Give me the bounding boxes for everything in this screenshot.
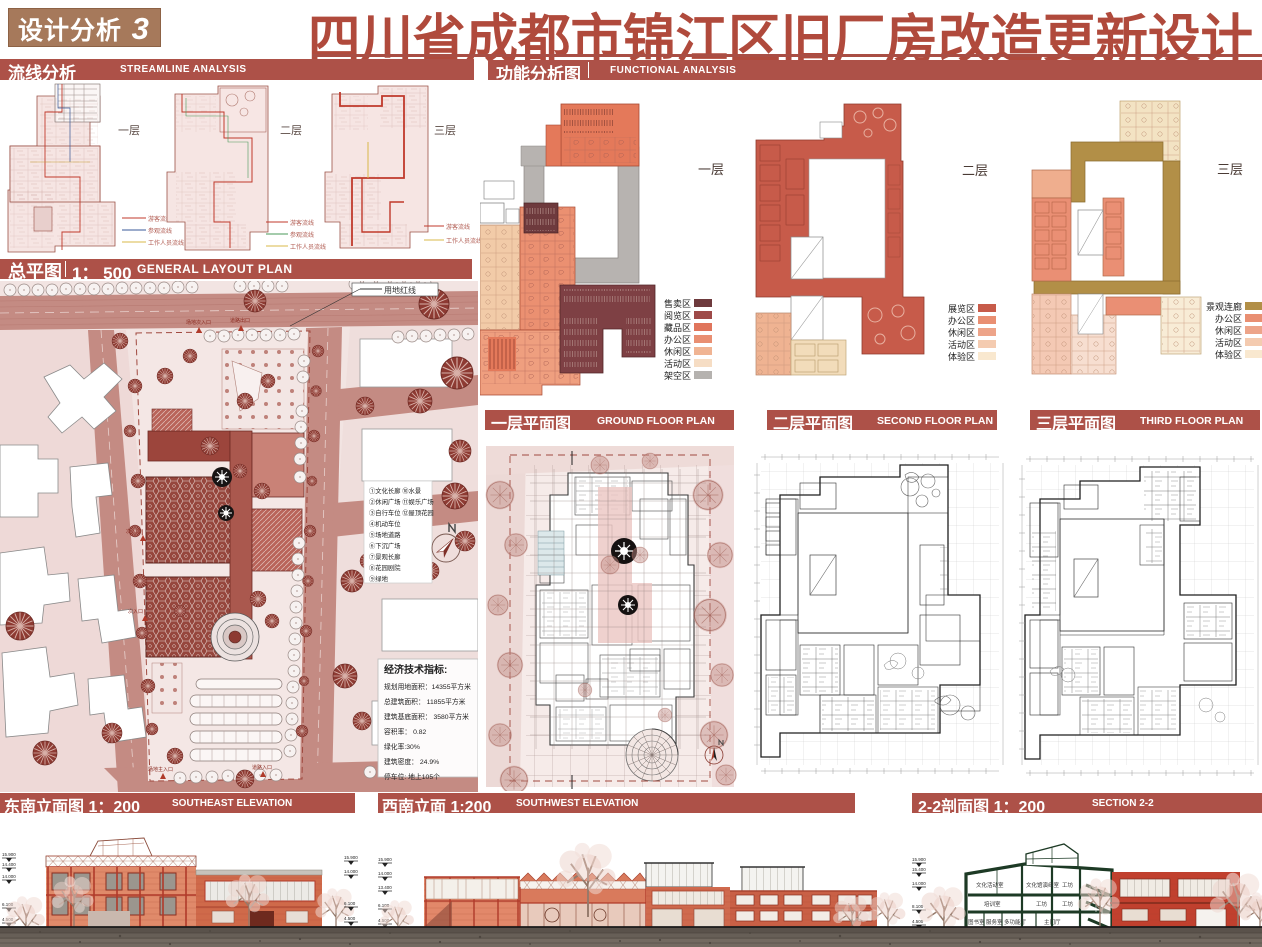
svg-text:⑧花园剧院: ⑧花园剧院	[369, 563, 401, 572]
svg-text:参观流线: 参观流线	[290, 231, 314, 239]
svg-text:活动区: 活动区	[1215, 337, 1242, 348]
svg-text:13.400: 13.400	[378, 885, 392, 890]
svg-text:道路出口: 道路出口	[230, 317, 250, 324]
svg-text:14.000: 14.000	[378, 871, 392, 876]
svg-text:规划用地面积：14355平方米: 规划用地面积：14355平方米	[384, 682, 471, 691]
svg-text:办公区: 办公区	[1215, 313, 1242, 324]
svg-text:文化馆演绎室: 文化馆演绎室	[1026, 881, 1060, 889]
svg-text:4.500: 4.500	[344, 916, 356, 921]
svg-text:工作人员流线: 工作人员流线	[290, 243, 326, 251]
svg-text:建筑基底面积： 3580平方米: 建筑基底面积： 3580平方米	[384, 712, 469, 721]
svg-text:总建筑面积： 11855平方米: 总建筑面积： 11855平方米	[384, 697, 466, 706]
svg-text:培训室: 培训室	[984, 900, 1001, 908]
svg-text:休闲区: 休闲区	[664, 346, 691, 357]
svg-text:阅览区: 阅览区	[664, 310, 691, 321]
svg-text:工坊: 工坊	[1062, 881, 1074, 889]
svg-text:停车位: 地上105个: 停车位: 地上105个	[384, 772, 440, 781]
svg-text:容积率： 0.82: 容积率： 0.82	[384, 727, 427, 736]
svg-text:休闲区: 休闲区	[1215, 325, 1242, 336]
svg-text:售卖区: 售卖区	[664, 298, 691, 309]
svg-text:游客流线: 游客流线	[446, 223, 470, 231]
svg-text:文化活动室: 文化活动室	[976, 881, 1004, 889]
svg-text:④机动车位: ④机动车位	[369, 519, 401, 528]
svg-text:场地次入口: 场地次入口	[186, 319, 211, 326]
svg-text:体验区: 体验区	[948, 351, 975, 362]
svg-text:办公区: 办公区	[664, 334, 691, 345]
svg-text:展览区: 展览区	[948, 303, 975, 314]
svg-text:次入口: 次入口	[126, 528, 141, 535]
svg-text:15.900: 15.900	[344, 855, 358, 860]
svg-text:场地主入口: 场地主入口	[148, 766, 173, 773]
svg-text:主门厅: 主门厅	[1044, 918, 1061, 926]
svg-text:二层: 二层	[280, 124, 302, 137]
svg-text:14.000: 14.000	[2, 874, 16, 879]
svg-text:架空区: 架空区	[664, 370, 691, 381]
svg-text:工坊: 工坊	[1036, 900, 1048, 908]
svg-text:图书室 服务室 多功能厅: 图书室 服务室 多功能厅	[968, 918, 1027, 926]
svg-text:绿化率:30%: 绿化率:30%	[384, 742, 420, 751]
svg-text:工作人员流线: 工作人员流线	[446, 237, 480, 245]
svg-text:6.100: 6.100	[344, 901, 356, 906]
svg-text:参观流线: 参观流线	[148, 227, 172, 235]
svg-text:一层: 一层	[118, 124, 140, 137]
svg-text:活动区: 活动区	[664, 358, 691, 369]
svg-text:①文化长廊 ⑩水景: ①文化长廊 ⑩水景	[369, 486, 421, 495]
svg-text:⑤场地道路: ⑤场地道路	[369, 530, 401, 539]
svg-text:③自行车位 ⑫屋顶花园: ③自行车位 ⑫屋顶花园	[369, 508, 434, 517]
svg-text:②休闲广场 ⑪娱乐广场: ②休闲广场 ⑪娱乐广场	[369, 497, 434, 506]
svg-text:建筑密度： 24.9%: 建筑密度： 24.9%	[384, 757, 439, 766]
svg-text:游客流线: 游客流线	[290, 219, 314, 227]
svg-text:15.900: 15.900	[2, 852, 16, 857]
svg-text:⑨绿地: ⑨绿地	[369, 574, 389, 583]
svg-text:用地红线: 用地红线	[384, 285, 416, 295]
svg-text:藏品区: 藏品区	[664, 322, 691, 333]
svg-text:15.900: 15.900	[378, 857, 392, 862]
svg-text:休闲区: 休闲区	[948, 327, 975, 338]
svg-text:办公区: 办公区	[948, 315, 975, 326]
svg-text:⑥下沉广场: ⑥下沉广场	[369, 541, 400, 550]
svg-text:14.000: 14.000	[912, 881, 926, 886]
svg-text:三层: 三层	[1217, 162, 1243, 177]
svg-text:15.900: 15.900	[912, 857, 926, 862]
svg-text:8.100: 8.100	[912, 904, 924, 909]
svg-text:活动区: 活动区	[948, 339, 975, 350]
svg-text:14.000: 14.000	[344, 869, 358, 874]
svg-text:体验区: 体验区	[1215, 349, 1242, 360]
svg-text:次入口: 次入口	[128, 608, 143, 615]
svg-text:15.400: 15.400	[912, 867, 926, 872]
svg-text:景观连廊: 景观连廊	[1206, 301, 1242, 312]
svg-text:14.400: 14.400	[2, 862, 16, 867]
svg-text:一层: 一层	[698, 162, 724, 177]
svg-text:工作人员流线: 工作人员流线	[148, 239, 184, 247]
svg-text:经济技术指标:: 经济技术指标:	[384, 663, 447, 676]
svg-text:三层: 三层	[434, 124, 456, 137]
svg-text:工坊: 工坊	[1062, 900, 1074, 908]
svg-text:⑦景观长廊: ⑦景观长廊	[369, 552, 400, 561]
svg-text:道路入口: 道路入口	[252, 764, 272, 771]
svg-text:二层: 二层	[962, 163, 988, 178]
